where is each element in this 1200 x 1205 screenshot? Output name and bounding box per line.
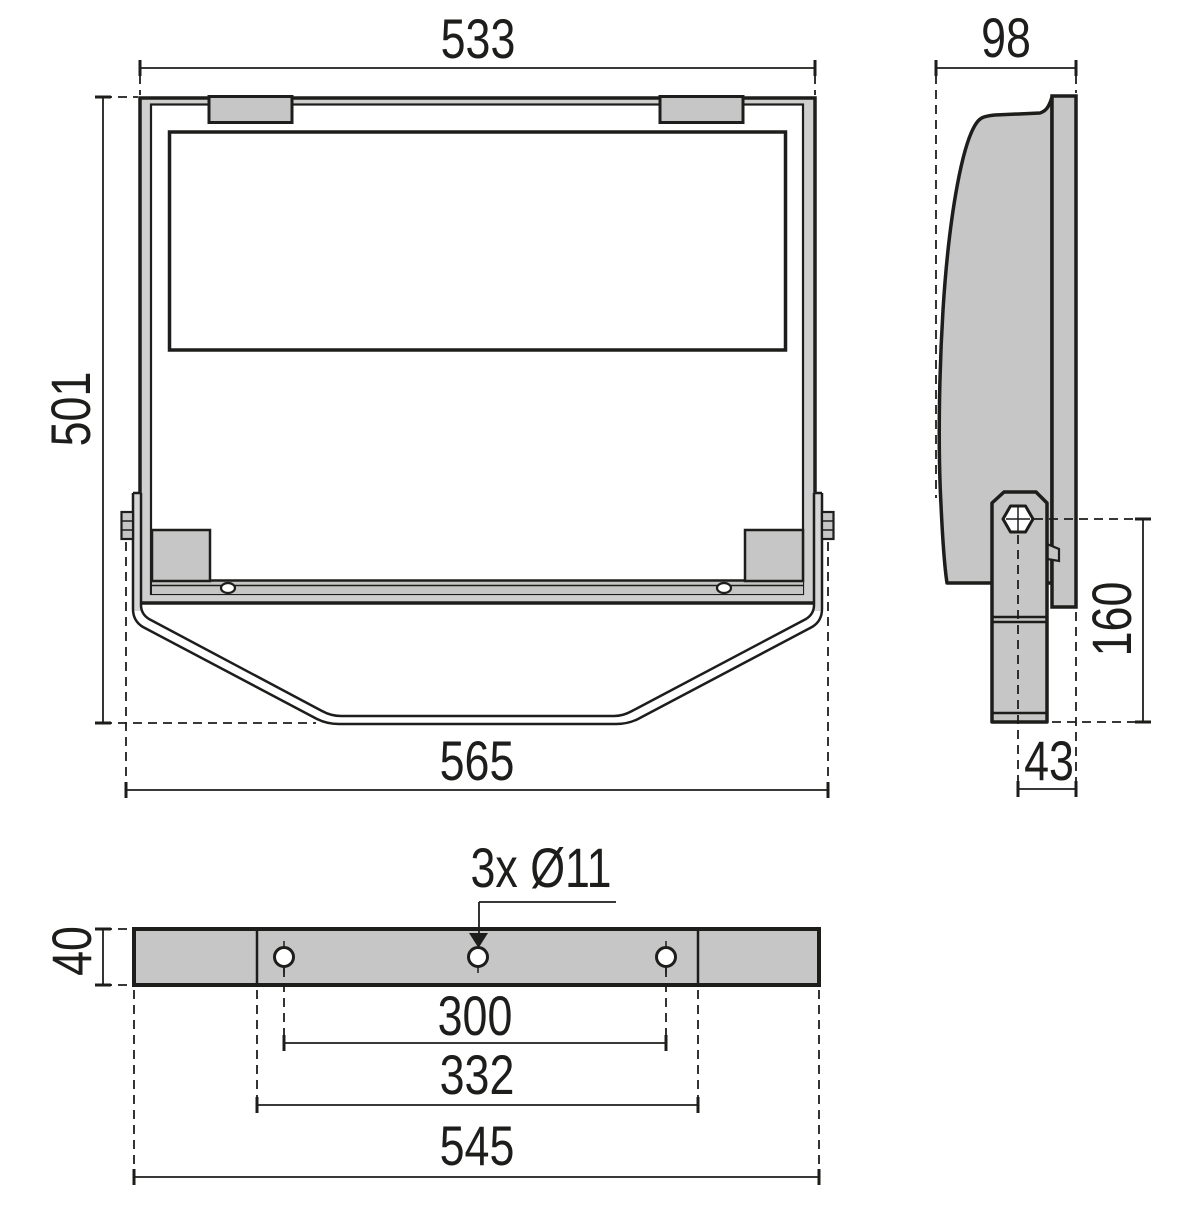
- rail-screw-right: [717, 583, 731, 593]
- top-clip-left: [209, 97, 292, 123]
- dim-label-width-bottom: 565: [440, 729, 515, 792]
- top-clip-right: [660, 97, 743, 123]
- dim-label-inner-spacing: 332: [440, 1043, 515, 1106]
- dim-label-height: 501: [39, 372, 102, 447]
- gear-tray-rail: [151, 580, 803, 594]
- technical-drawing-page: 533 501 565 98 160 43 40 3x Ø11 300 332 …: [0, 0, 1200, 1200]
- dim-label-base-offset: 43: [1024, 729, 1074, 792]
- dim-label-width-top: 533: [441, 7, 516, 70]
- corner-block-right: [745, 530, 803, 581]
- dim-label-overall-width: 545: [440, 1114, 515, 1177]
- pivot-hex-bolt: [1003, 506, 1033, 532]
- dim-label-depth: 98: [981, 6, 1031, 69]
- dim-label-hole-spacing: 300: [438, 984, 513, 1047]
- front-view: [122, 97, 834, 725]
- dim-label-thickness: 40: [40, 926, 103, 976]
- optic-panel: [170, 132, 786, 350]
- pivot-bolt-left: [122, 512, 134, 539]
- front-frame-profile: [1052, 96, 1076, 607]
- pivot-bolt-right: [822, 512, 834, 539]
- rail-screw-left: [221, 583, 235, 593]
- dim-label-hole-callout: 3x Ø11: [470, 836, 611, 899]
- dim-label-pivot-to-base: 160: [1080, 582, 1143, 657]
- side-view: [939, 96, 1076, 722]
- corner-block-left: [152, 530, 210, 581]
- floodlight-dimension-drawing: 533 501 565 98 160 43 40 3x Ø11 300 332 …: [0, 0, 1200, 1200]
- bottom-bracket-view: [134, 902, 819, 985]
